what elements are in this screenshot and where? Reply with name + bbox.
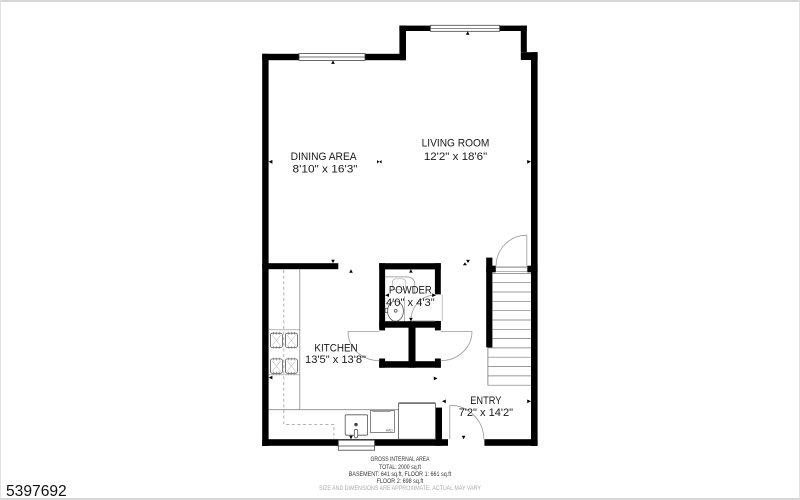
svg-text:12'2" x 18'6": 12'2" x 18'6" <box>424 151 487 163</box>
svg-text:TOTAL: 2000 sq.ft: TOTAL: 2000 sq.ft <box>379 464 421 471</box>
svg-text:FLOOR 2: 698 sq.ft: FLOOR 2: 698 sq.ft <box>377 479 424 485</box>
svg-text:POWDER: POWDER <box>389 285 432 297</box>
svg-text:13'5" x 13'8": 13'5" x 13'8" <box>305 354 366 366</box>
svg-text:4'0" x 4'3": 4'0" x 4'3" <box>386 297 435 309</box>
svg-text:7'2" x 14'2": 7'2" x 14'2" <box>459 407 513 419</box>
svg-text:ENTRY: ENTRY <box>470 395 501 407</box>
svg-text:BASEMENT: 641 sq.ft, FLOOR 1:: BASEMENT: 641 sq.ft, FLOOR 1: 661 sq.ft <box>349 472 452 478</box>
svg-text:LIVING ROOM: LIVING ROOM <box>422 137 490 150</box>
svg-text:DINING AREA: DINING AREA <box>291 150 358 163</box>
svg-text:AAD: AAD <box>386 428 394 432</box>
svg-text:5397692: 5397692 <box>6 483 67 500</box>
svg-text:SIZE AND DIMENSIONS ARE APPROX: SIZE AND DIMENSIONS ARE APPROXIMATE, ACT… <box>319 486 481 493</box>
svg-text:8'10" x 16'3": 8'10" x 16'3" <box>292 162 357 175</box>
svg-text:GROSS INTERNAL AREA: GROSS INTERNAL AREA <box>370 457 429 464</box>
